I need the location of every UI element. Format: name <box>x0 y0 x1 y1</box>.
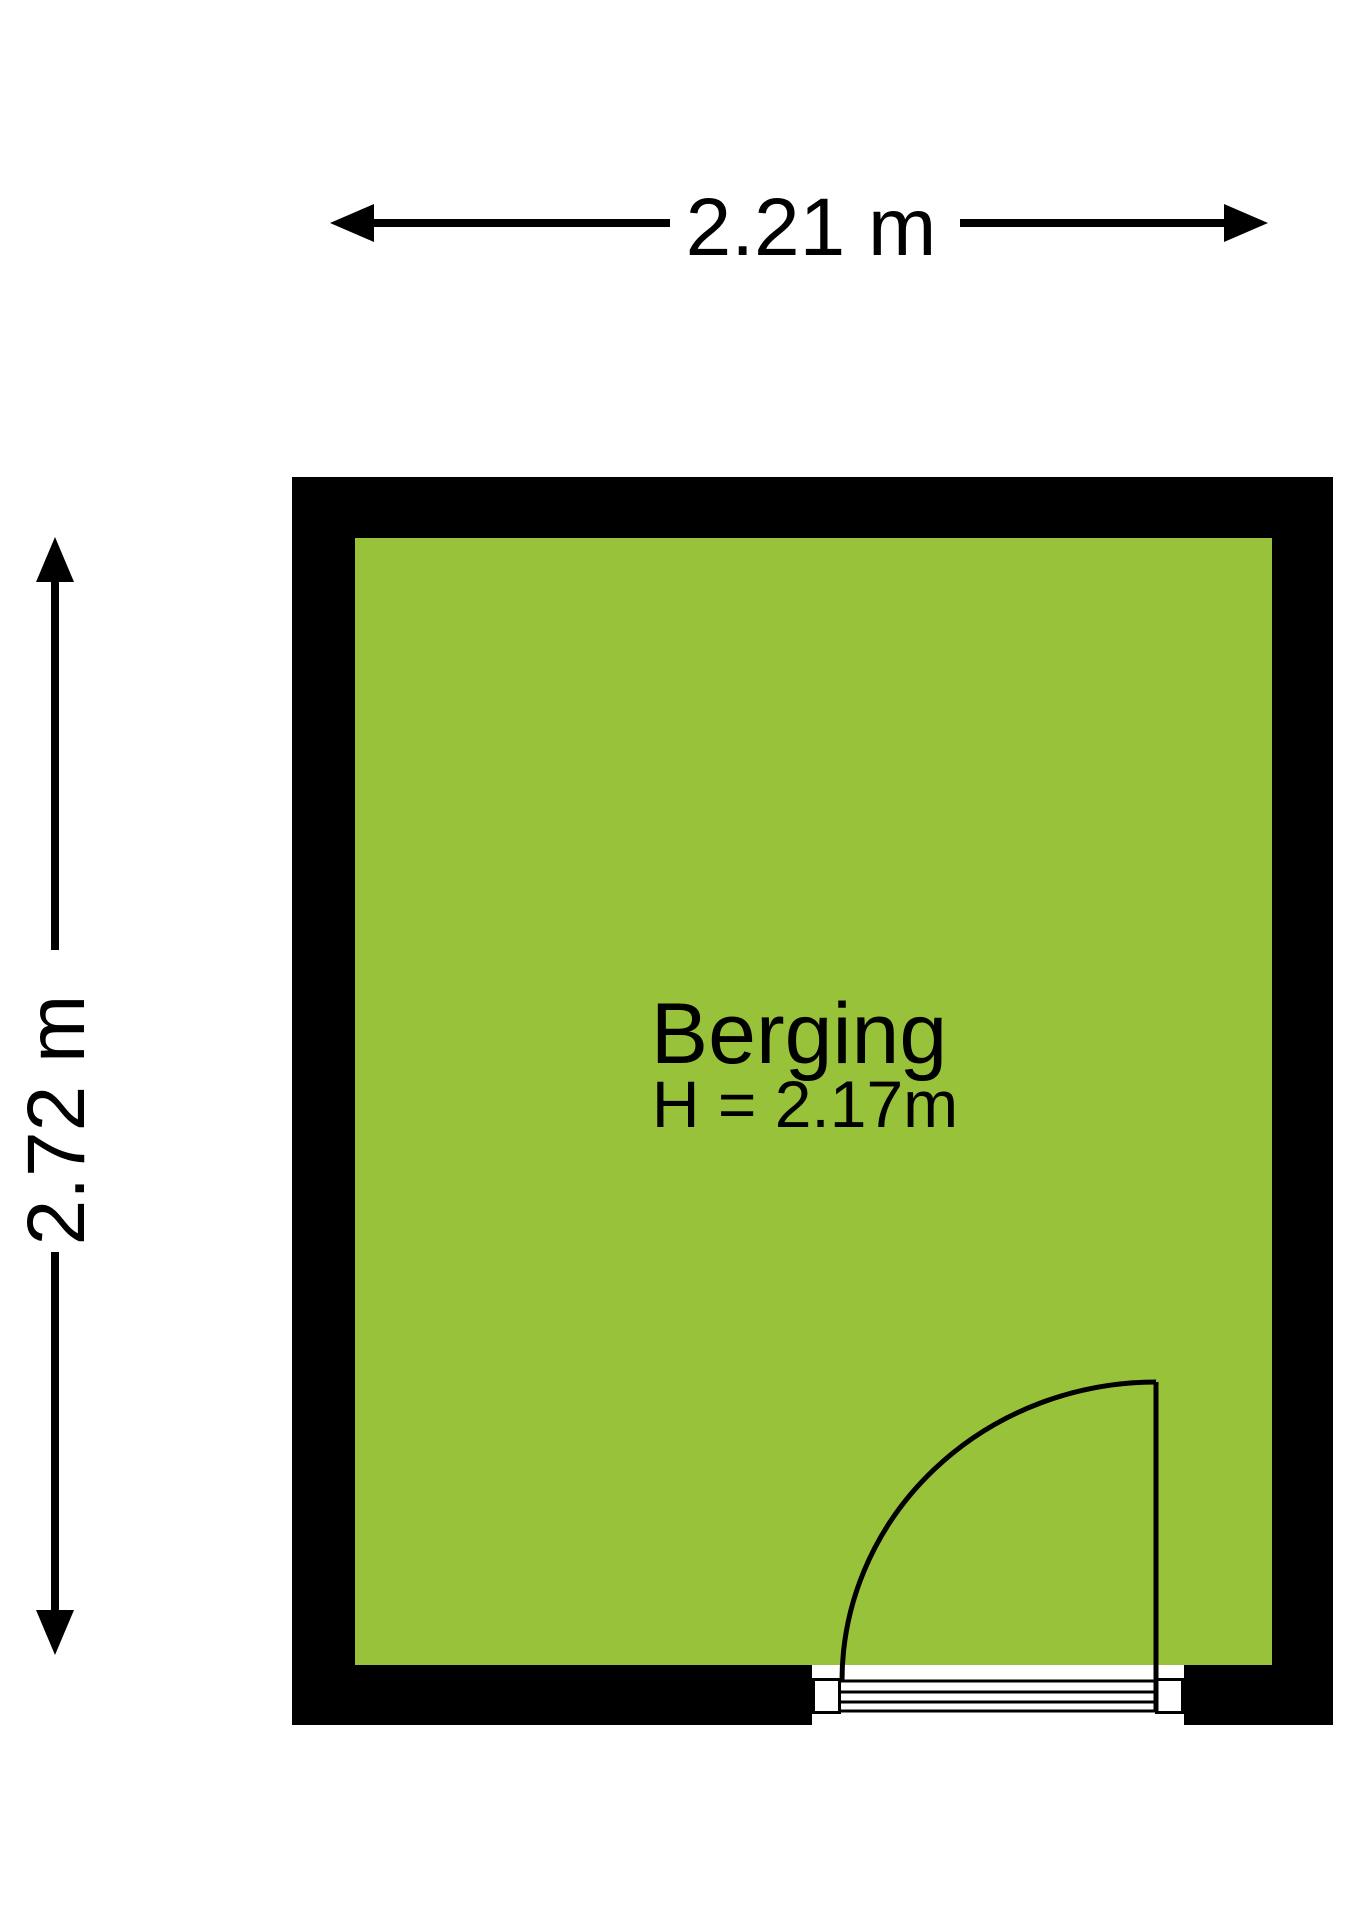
floor-plan-page: 2.21 m 2.72 m Berging H = 2.17m <box>0 0 1358 1920</box>
width-dimension: 2.21 m <box>330 182 1268 273</box>
height-arrowhead-top-icon <box>36 537 74 582</box>
floor-plan-canvas: 2.21 m 2.72 m Berging H = 2.17m <box>0 0 1358 1920</box>
height-arrowhead-bottom-icon <box>36 1610 74 1655</box>
width-dimension-label: 2.21 m <box>686 182 937 273</box>
wall-bottom-right-of-door <box>1184 1665 1272 1725</box>
door-jamb-right <box>1157 1680 1183 1713</box>
door-jamb-left <box>814 1680 840 1713</box>
wall-right <box>1272 538 1333 1725</box>
wall-left <box>292 538 355 1725</box>
room-labels: Berging H = 2.17m <box>651 986 958 1141</box>
room-ceiling-height-label: H = 2.17m <box>652 1067 958 1141</box>
wall-top <box>292 477 1333 538</box>
width-arrowhead-left-icon <box>330 204 374 242</box>
height-dimension: 2.72 m <box>11 537 102 1655</box>
door-threshold-lines <box>840 1681 1157 1711</box>
width-arrowhead-right-icon <box>1224 204 1268 242</box>
wall-bottom-left-of-door <box>355 1665 812 1725</box>
height-dimension-label: 2.72 m <box>11 995 102 1246</box>
